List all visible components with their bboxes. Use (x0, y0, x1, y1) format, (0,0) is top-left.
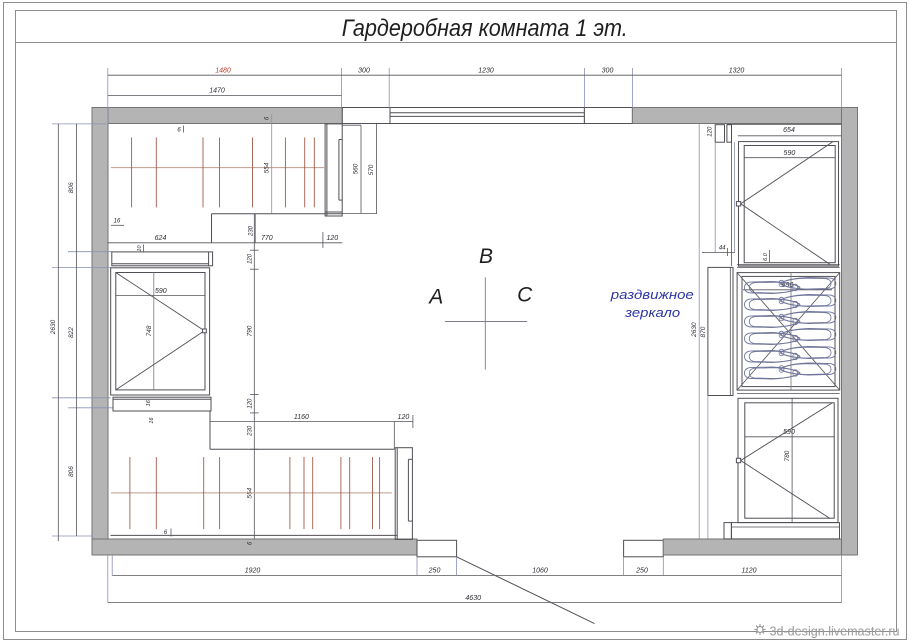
svg-text:120: 120 (708, 126, 714, 137)
svg-text:300: 300 (358, 67, 370, 74)
svg-text:10: 10 (137, 245, 143, 252)
svg-text:1160: 1160 (294, 414, 309, 421)
svg-text:2630: 2630 (50, 319, 57, 335)
svg-text:554: 554 (263, 162, 270, 173)
svg-text:570: 570 (368, 164, 375, 175)
svg-text:120: 120 (248, 398, 254, 409)
svg-text:6.0: 6.0 (763, 252, 769, 261)
svg-text:120: 120 (248, 253, 254, 264)
svg-text:870: 870 (700, 326, 707, 337)
svg-text:2630: 2630 (691, 322, 698, 338)
svg-text:300: 300 (602, 67, 614, 74)
svg-text:806: 806 (68, 466, 75, 477)
svg-text:A: A (427, 286, 443, 309)
svg-text:раздвижное: раздвижное (610, 287, 694, 302)
svg-text:806: 806 (68, 182, 75, 193)
svg-text:44: 44 (719, 246, 726, 252)
svg-text:3d-design.livemaster.ru: 3d-design.livemaster.ru (770, 624, 900, 639)
svg-text:590: 590 (155, 288, 167, 295)
svg-text:6: 6 (164, 530, 168, 536)
svg-text:120: 120 (326, 235, 338, 242)
svg-text:654: 654 (783, 127, 795, 134)
svg-text:16: 16 (149, 417, 155, 424)
svg-text:250: 250 (428, 568, 441, 575)
svg-text:120: 120 (398, 414, 410, 421)
svg-text:1480: 1480 (215, 67, 231, 74)
svg-text:1320: 1320 (729, 67, 745, 74)
svg-text:16: 16 (114, 219, 121, 225)
svg-text:560: 560 (353, 163, 360, 174)
svg-text:822: 822 (68, 327, 75, 338)
svg-text:B: B (479, 245, 493, 268)
svg-text:230: 230 (248, 425, 254, 437)
svg-text:16: 16 (146, 399, 152, 406)
svg-text:780: 780 (784, 450, 791, 461)
svg-text:1230: 1230 (478, 67, 494, 74)
svg-text:зеркало: зеркало (624, 305, 680, 320)
svg-text:1470: 1470 (209, 88, 225, 95)
svg-text:790: 790 (247, 325, 254, 336)
svg-text:6: 6 (177, 128, 181, 134)
svg-text:250: 250 (635, 568, 648, 575)
svg-text:1920: 1920 (245, 568, 261, 575)
svg-text:4630: 4630 (465, 595, 481, 602)
svg-text:C: C (517, 284, 533, 307)
svg-text:770: 770 (261, 235, 273, 242)
svg-text:230: 230 (249, 225, 255, 237)
svg-text:624: 624 (155, 235, 167, 242)
svg-text:748: 748 (146, 325, 153, 336)
svg-text:Гардеробная комната 1 эт.: Гардеробная комната 1 эт. (342, 15, 628, 42)
svg-text:1120: 1120 (741, 568, 756, 575)
svg-text:1060: 1060 (532, 568, 548, 575)
svg-text:590: 590 (784, 150, 796, 157)
